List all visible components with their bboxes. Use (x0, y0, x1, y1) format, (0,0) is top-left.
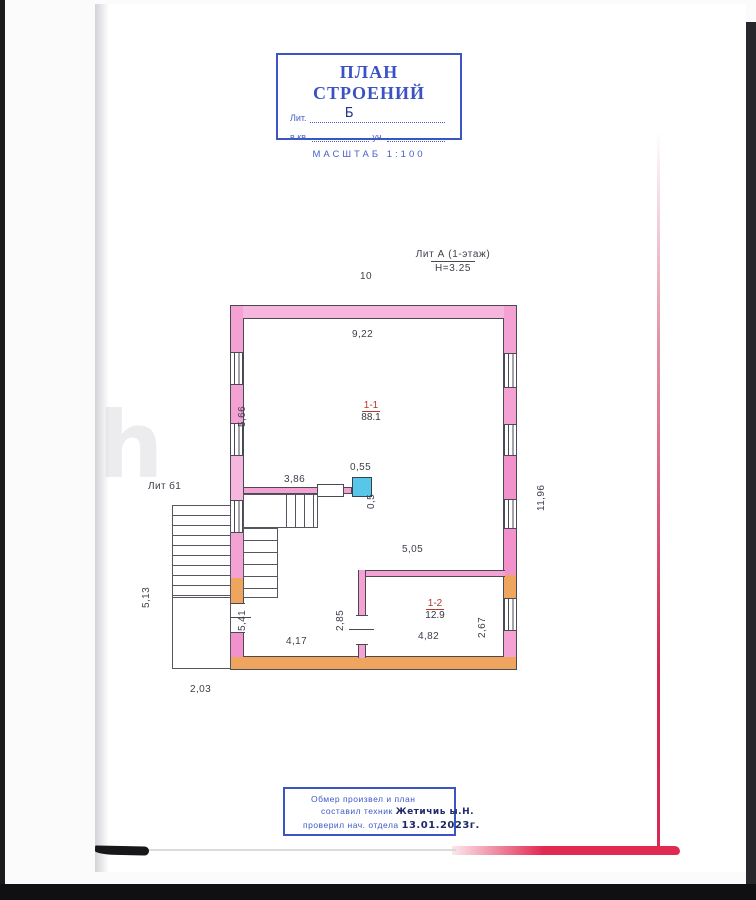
interior-wall-opening (317, 484, 344, 497)
dim-room2-bottom: 4,82 (418, 631, 439, 642)
dim-bottom-left: 4,17 (286, 636, 307, 647)
liter-value: Б (345, 106, 354, 121)
page-bottom-shadow (108, 849, 456, 851)
red-cover-edge-right (657, 130, 660, 848)
scanned-floor-plan-page: h ПЛАН СТРОЕНИЙ Лит. Б в кв. уч. МАСШТАБ… (0, 0, 756, 900)
title-stamp: ПЛАН СТРОЕНИЙ Лит. Б в кв. уч. МАСШТАБ 1… (276, 53, 462, 140)
room-1-1-label: 1-1 88.1 (351, 400, 391, 423)
technician-name: Жетичиь ы.Н. (396, 807, 474, 817)
building-liter: Лит А (1-этаж) (403, 249, 503, 260)
footer-line3: проверил нач. отдела 13.01.2023г. (291, 819, 448, 834)
room-number: 1-1 (362, 400, 380, 412)
room-number: 1-2 (426, 598, 444, 610)
window (504, 353, 517, 388)
liter-dotted-line: Б (310, 112, 445, 123)
red-cover-edge-bottom (452, 846, 680, 855)
interior-stairs-upper (243, 494, 318, 528)
dim-stove-width: 0,55 (350, 462, 371, 473)
photo-edge-left (0, 0, 5, 900)
window (504, 499, 517, 529)
check-date: 13.01.2023г. (402, 820, 480, 831)
building-caption: Лит А (1-этаж) Н=3.25 (403, 249, 503, 274)
uch-label: уч. (372, 132, 384, 142)
interior-stairs-treads (278, 495, 317, 527)
dim-annex-height: 5,13 (141, 587, 152, 608)
window (230, 352, 243, 385)
window (504, 424, 517, 456)
dim-stove-depth: 0,5 (366, 494, 377, 509)
room2-wall-top (358, 570, 505, 577)
dim-left-upper: 5,66 (237, 406, 248, 427)
interior-stairs-lower (243, 528, 278, 598)
liter-row: Лит. Б (290, 112, 448, 123)
kv-uch-row: в кв. уч. (290, 131, 448, 142)
door-tick (349, 629, 374, 630)
dim-room2-left: 2,85 (335, 610, 346, 631)
footer-line2-label: составил техник (321, 806, 393, 816)
dim-inner-wall: 3,86 (284, 474, 305, 485)
room-1-2-label: 1-2 12.9 (415, 598, 455, 621)
footer-line1: Обмер произвел и план (291, 793, 448, 805)
footer-line2: составил техник Жетичиь ы.Н. (291, 805, 448, 819)
window (230, 423, 243, 456)
dim-left-lower: 5,41 (237, 610, 248, 631)
footer-line3-label: проверил нач. отдела (303, 820, 399, 830)
liter-label: Лит. (290, 113, 307, 123)
dim-annex-width: 2,03 (190, 684, 211, 695)
kv-dotted-line (312, 131, 370, 142)
dim-room2-right: 2,67 (477, 617, 488, 638)
room-area: 12.9 (425, 610, 444, 621)
photo-edge-right (746, 22, 756, 884)
footer-stamp: Обмер произвел и план составил техник Же… (283, 787, 456, 836)
stamp-title: ПЛАН СТРОЕНИЙ (290, 62, 448, 104)
dim-right-total: 11,96 (536, 485, 547, 511)
dim-top: 9,22 (352, 329, 373, 340)
room-area: 88.1 (361, 412, 380, 423)
uch-dotted-line (387, 131, 445, 142)
door-opening-room2 (356, 615, 368, 645)
building-height: Н=3.25 (431, 261, 475, 274)
dim-room2-top: 5,05 (402, 544, 423, 555)
scale-label: МАСШТАБ 1:100 (290, 149, 448, 160)
photo-edge-bottom (0, 884, 756, 900)
page-number: 10 (360, 271, 372, 282)
annex-liter: Лит б1 (148, 481, 181, 492)
kv-label: в кв. (290, 132, 309, 142)
window (230, 500, 243, 533)
exterior-stairs-landing (172, 597, 231, 669)
exterior-stairs (172, 505, 231, 598)
window (504, 598, 517, 631)
